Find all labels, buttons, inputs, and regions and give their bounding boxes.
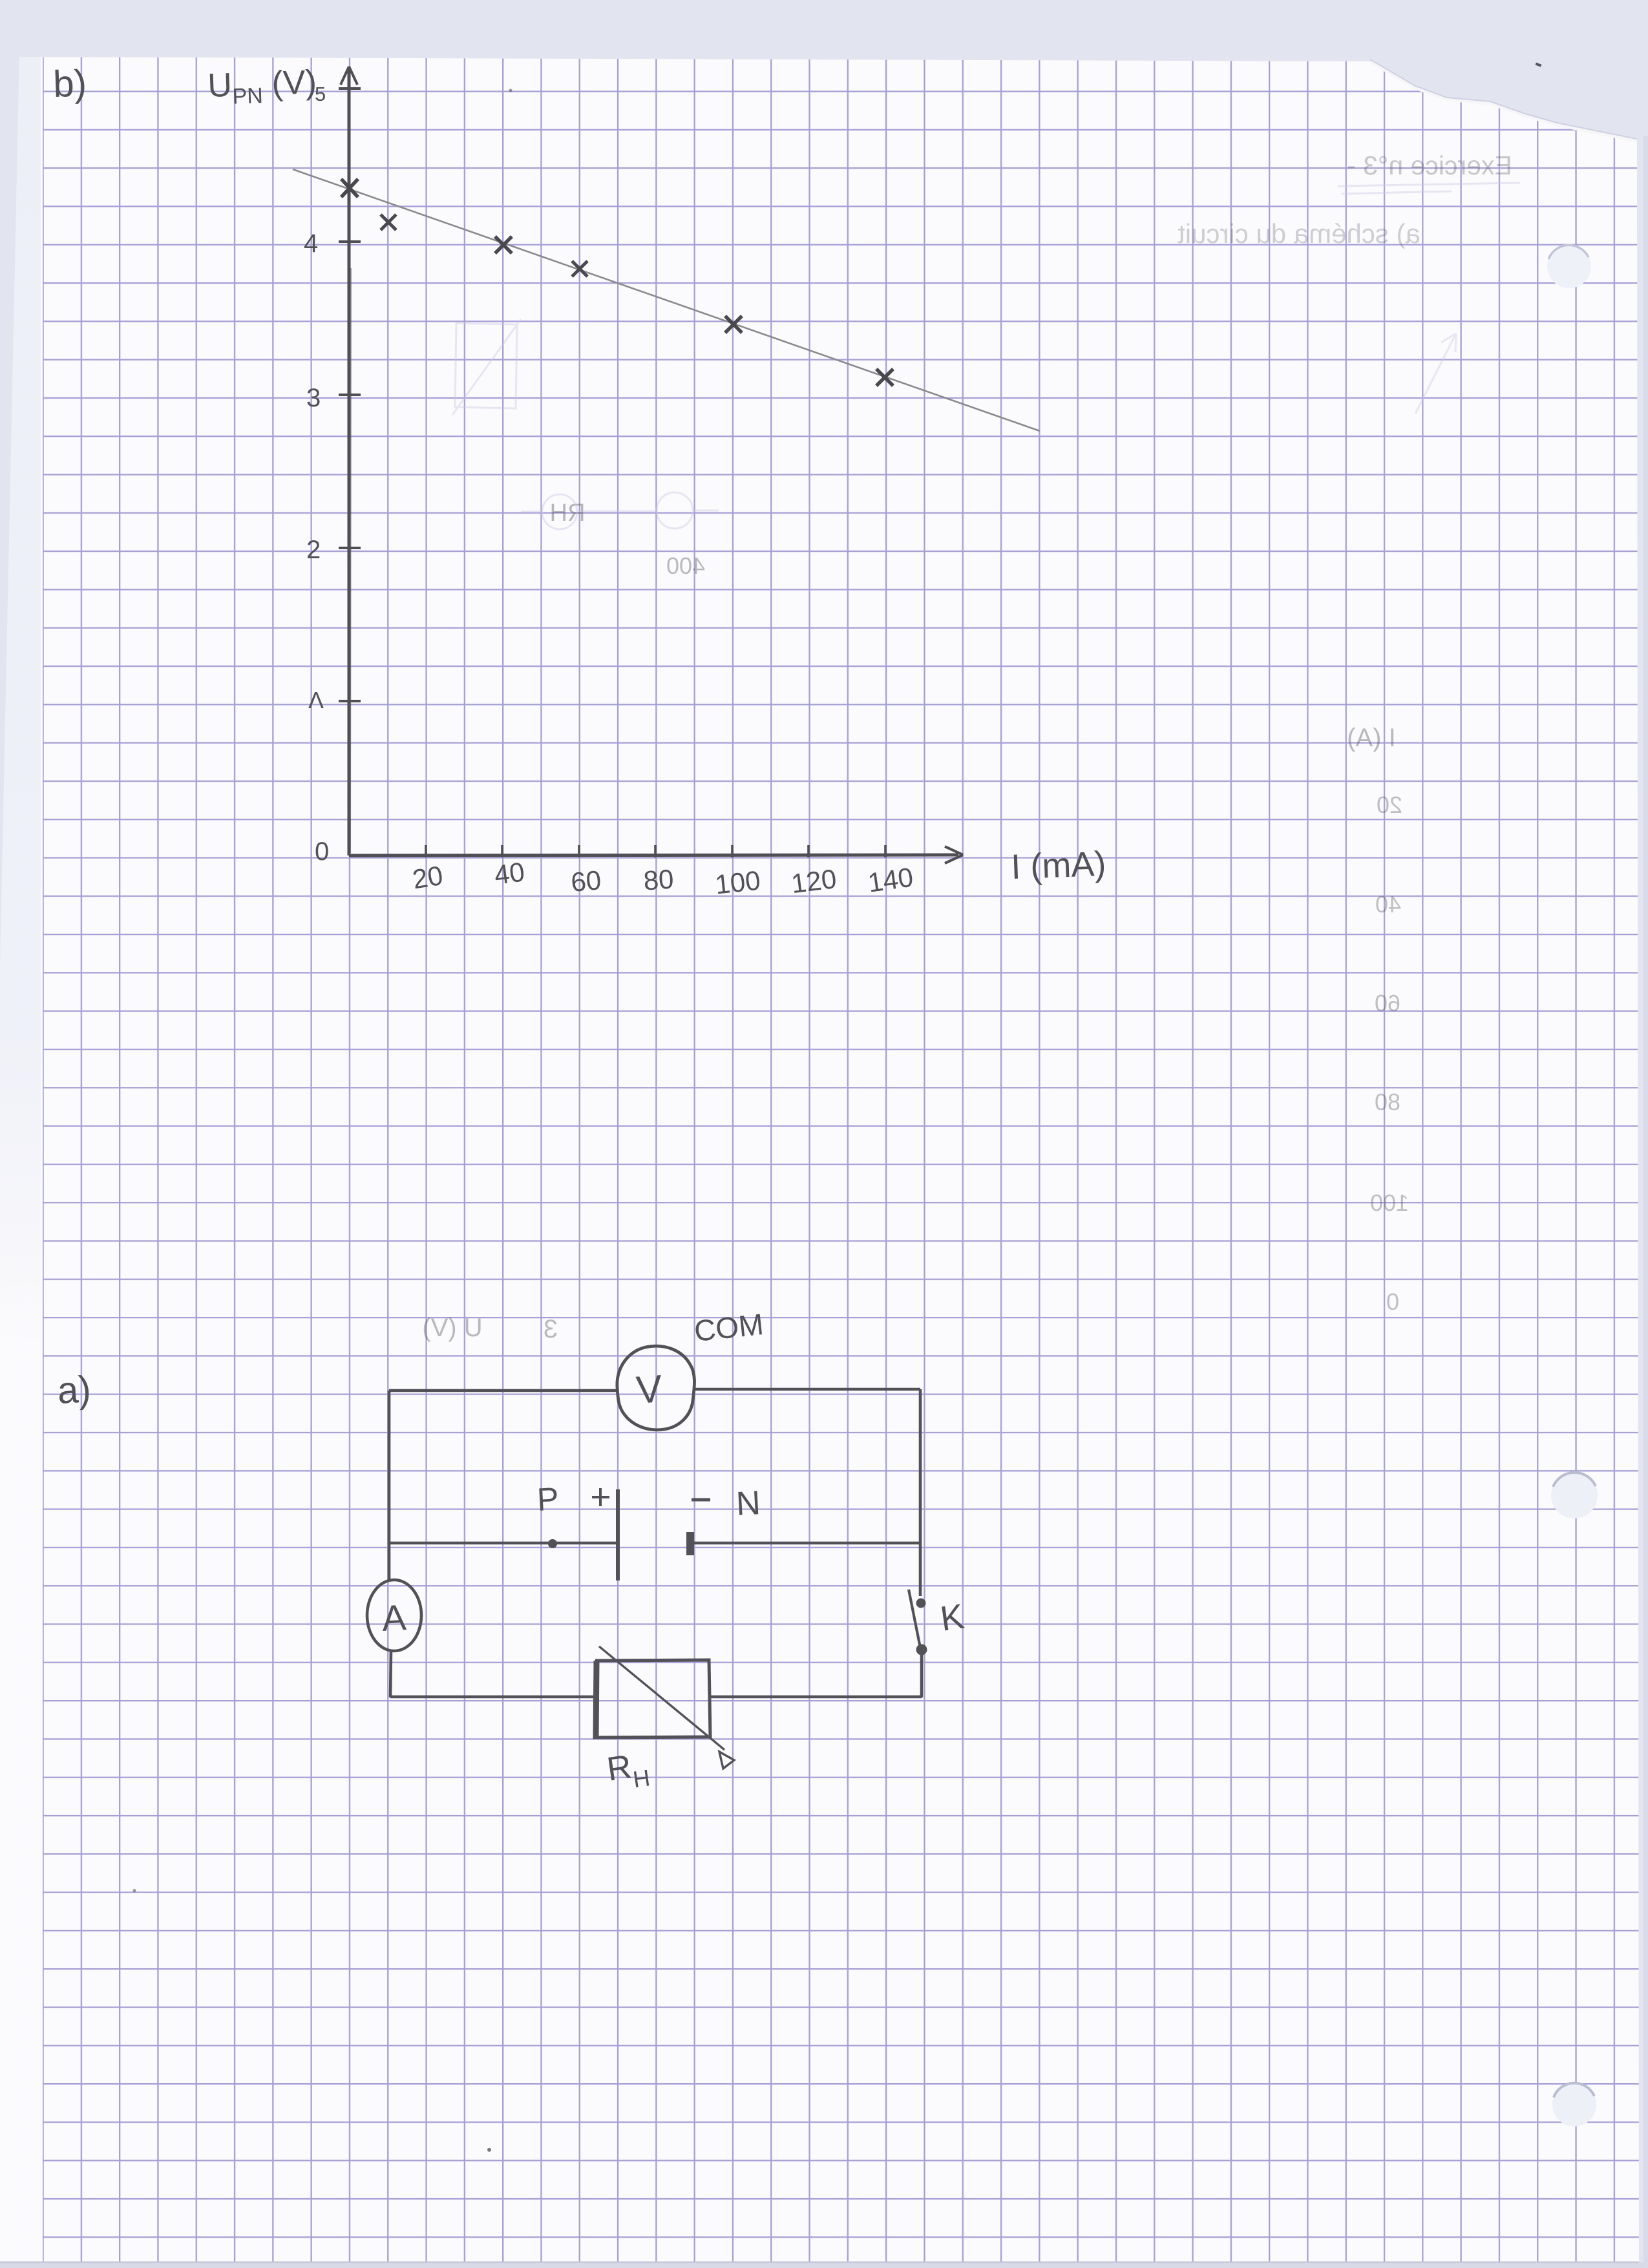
svg-text:V: V — [635, 1367, 664, 1412]
svg-text:40: 40 — [492, 856, 526, 890]
svg-text:Λ: Λ — [308, 687, 324, 713]
svg-text:b): b) — [52, 62, 87, 105]
svg-text:I (A): I (A) — [1347, 724, 1396, 752]
svg-text:80: 80 — [642, 863, 675, 896]
svg-text:20: 20 — [1377, 792, 1402, 818]
svg-text:A: A — [381, 1597, 407, 1639]
svg-text:Exercice n°3 -: Exercice n°3 - — [1347, 151, 1512, 180]
svg-text:4: 4 — [304, 229, 318, 258]
svg-text:3: 3 — [544, 1315, 558, 1343]
svg-text:80: 80 — [1375, 1089, 1400, 1115]
svg-text:40: 40 — [1375, 891, 1401, 918]
svg-text:U (V): U (V) — [422, 1314, 482, 1342]
svg-text:400: 400 — [666, 552, 705, 579]
svg-text:5: 5 — [315, 83, 326, 105]
svg-text:100: 100 — [713, 865, 762, 900]
svg-text:3: 3 — [306, 384, 321, 412]
svg-text:RH: RH — [550, 499, 586, 527]
svg-text:P: P — [536, 1480, 560, 1518]
svg-text:140: 140 — [866, 861, 915, 898]
svg-text:20: 20 — [410, 860, 445, 895]
svg-text:100: 100 — [1370, 1190, 1409, 1216]
svg-text:N: N — [735, 1484, 762, 1523]
svg-text:60: 60 — [1375, 990, 1400, 1016]
svg-text:0: 0 — [315, 837, 329, 866]
svg-text:a) schéma du circuit: a) schéma du circuit — [1178, 218, 1421, 249]
svg-text:60: 60 — [569, 865, 602, 898]
svg-text:a): a) — [56, 1368, 92, 1412]
svg-text:2: 2 — [306, 536, 321, 564]
svg-text:0: 0 — [1386, 1288, 1399, 1315]
svg-text:120: 120 — [790, 863, 838, 899]
svg-text:I (mA): I (mA) — [1010, 845, 1106, 887]
